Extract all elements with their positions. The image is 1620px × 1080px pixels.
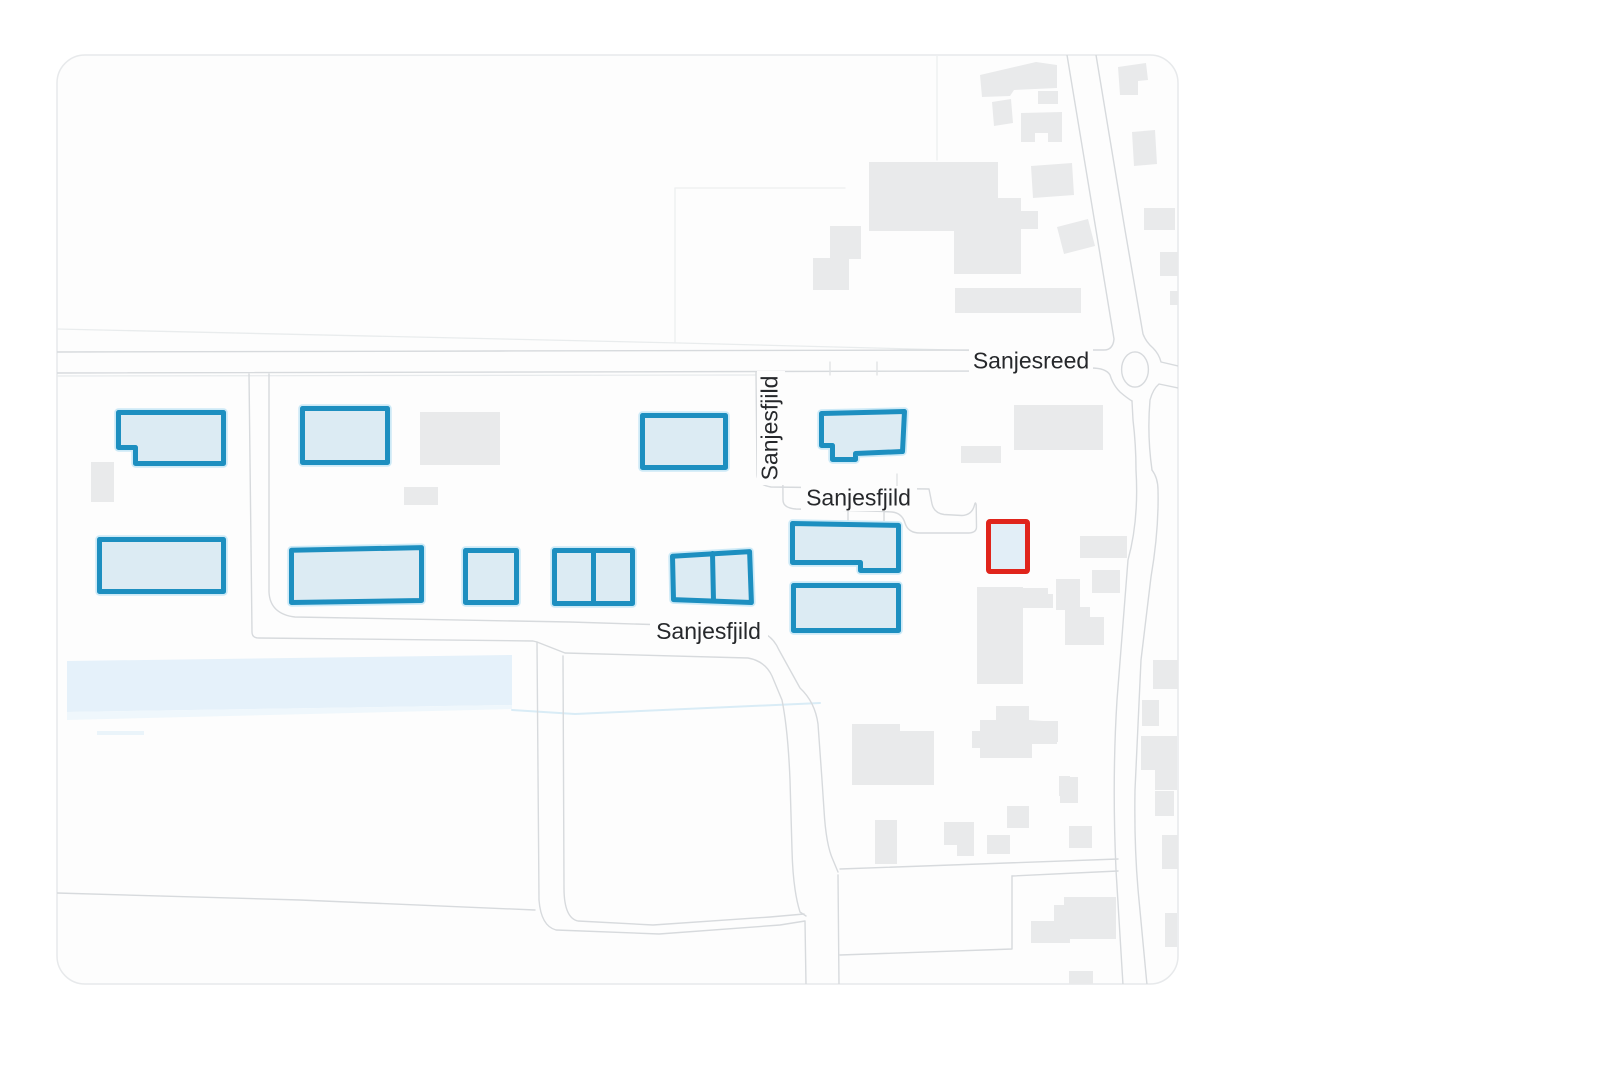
- svg-text:Sanjesreed: Sanjesreed: [973, 348, 1089, 374]
- svg-text:Sanjesfjild: Sanjesfjild: [757, 376, 783, 481]
- svg-text:Sanjesfjild: Sanjesfjild: [656, 618, 761, 644]
- svg-text:Sanjesfjild: Sanjesfjild: [806, 485, 911, 511]
